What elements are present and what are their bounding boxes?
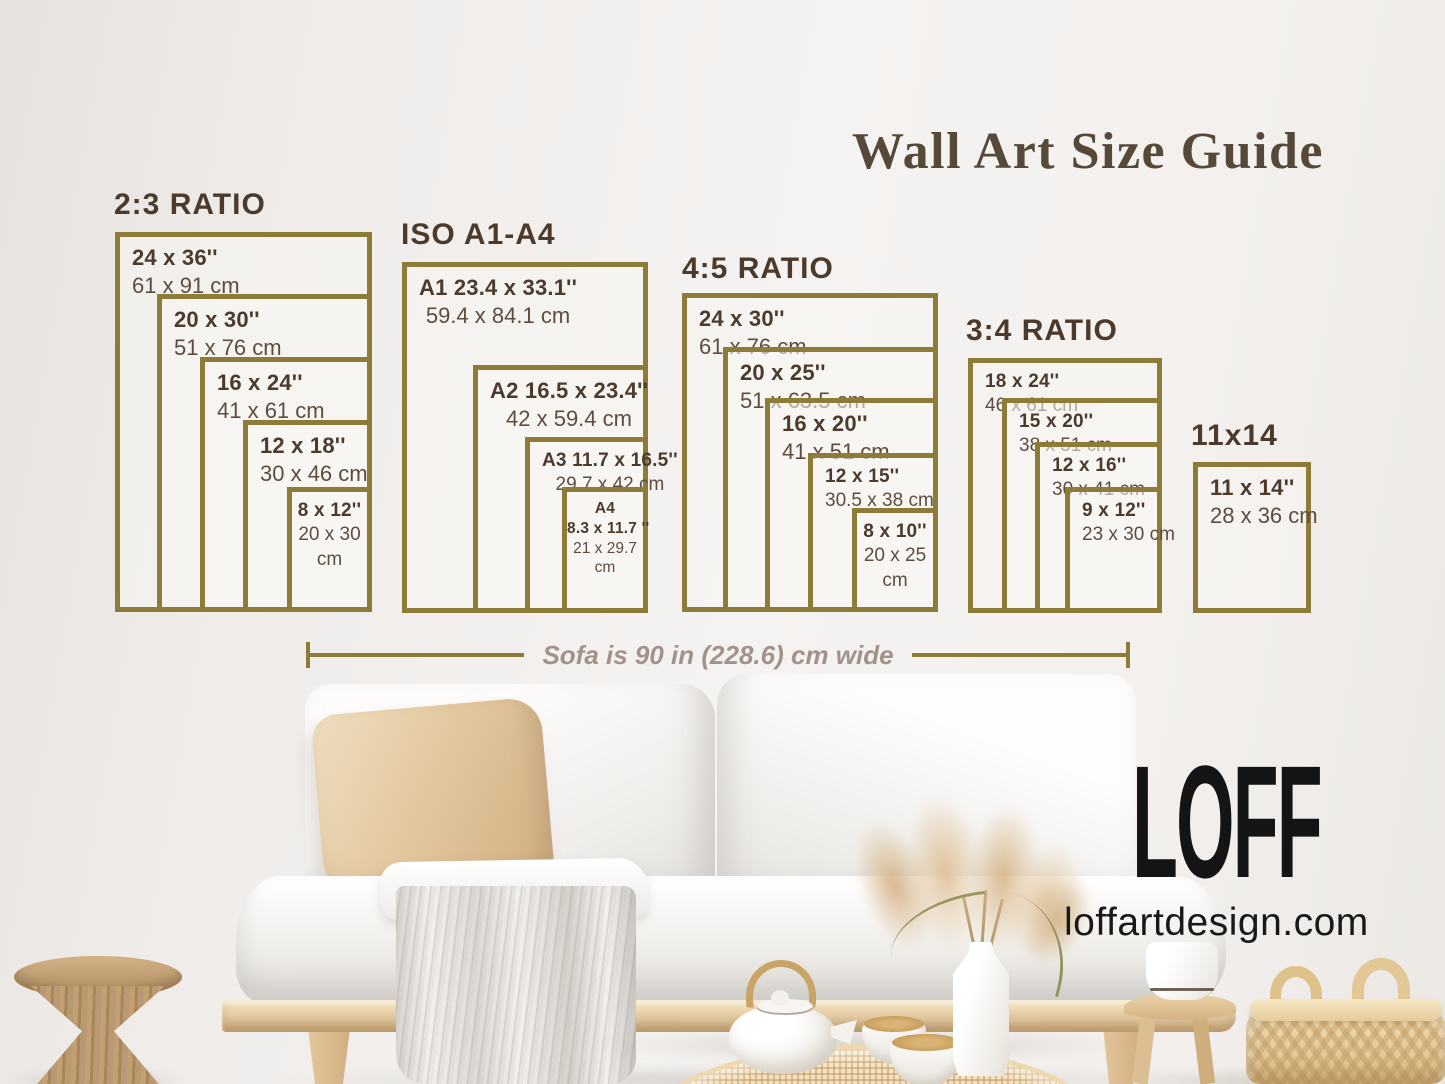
- size-frame-label: 24 x 36''61 x 91 cm: [132, 244, 240, 300]
- size-inches-text: 11 x 14'': [1210, 474, 1318, 502]
- size-inches-text: 24 x 30'': [699, 305, 807, 333]
- size-inches-text: 20 x 30'': [174, 306, 282, 334]
- section-header-2-3-ratio: 2:3 RATIO: [114, 188, 266, 222]
- section-header-3-4-ratio: 3:4 RATIO: [966, 314, 1118, 348]
- size-cm-text: 21 x 29.7: [567, 539, 643, 559]
- dimension-segment-right: [912, 653, 1126, 657]
- size-frame-label: 8 x 10''20 x 25cm: [857, 520, 933, 593]
- size-cm-text: 20 x 30: [292, 523, 367, 547]
- size-cm-text: 59.4 x 84.1 cm: [419, 302, 577, 330]
- size-cm-text: 30 x 46 cm: [260, 460, 368, 488]
- size-inches-text: 24 x 36'': [132, 244, 240, 272]
- size-inches-text: 16 x 24'': [217, 369, 325, 397]
- size-inches-text: A3 11.7 x 16.5'': [542, 449, 678, 473]
- size-cm-text: cm: [567, 558, 643, 578]
- wall-art-size-guide-poster: Wall Art Size Guide Sofa is 90 in (228.6…: [0, 0, 1445, 1084]
- size-cm-text: 23 x 30 cm: [1082, 523, 1175, 547]
- brand-logo: LOFF: [1132, 742, 1321, 902]
- sofa-width-dimension-line: Sofa is 90 in (228.6) cm wide: [306, 640, 1130, 670]
- size-frame-3-4-ratio-9x12: 9 x 12''23 x 30 cm: [1065, 487, 1162, 613]
- size-frame-label: 11 x 14''28 x 36 cm: [1210, 474, 1318, 530]
- size-frame-label: 12 x 15''30.5 x 38 cm: [825, 465, 934, 514]
- size-frame-label: A48.3 x 11.7 ''21 x 29.7cm: [567, 499, 643, 578]
- size-inches-text: 15 x 20'': [1019, 410, 1112, 434]
- size-frame-label: 8 x 12''20 x 30cm: [292, 499, 367, 572]
- size-inches-text: 20 x 25'': [740, 359, 866, 387]
- sofa-width-label: Sofa is 90 in (228.6) cm wide: [524, 640, 911, 671]
- section-header-iso-a1-a4: ISO A1-A4: [401, 218, 556, 252]
- size-cm-text: 20 x 25: [857, 544, 933, 568]
- size-cm-text: 28 x 36 cm: [1210, 502, 1318, 530]
- size-cm-text: cm: [292, 548, 367, 572]
- size-frame-label: 20 x 30''51 x 76 cm: [174, 306, 282, 362]
- size-inches-text: 12 x 15'': [825, 465, 934, 489]
- dimension-segment-left: [310, 653, 524, 657]
- size-frame-label: 16 x 24''41 x 61 cm: [217, 369, 325, 425]
- size-cm-text: cm: [857, 569, 933, 593]
- size-frame-iso-a1-a4-a4: A48.3 x 11.7 ''21 x 29.7cm: [562, 487, 648, 613]
- size-frame-label: 12 x 18''30 x 46 cm: [260, 432, 368, 488]
- size-frame-label: 9 x 12''23 x 30 cm: [1082, 499, 1175, 548]
- size-inches-text: A2 16.5 x 23.4'': [490, 377, 648, 405]
- section-header-4-5-ratio: 4:5 RATIO: [682, 252, 834, 286]
- size-inches-text: 8 x 12'': [292, 499, 367, 523]
- size-inches-text: 12 x 18'': [260, 432, 368, 460]
- page-title: Wall Art Size Guide: [852, 122, 1324, 181]
- size-inches-text: 12 x 16'': [1052, 454, 1145, 478]
- section-header-11x14: 11x14: [1191, 419, 1278, 453]
- size-frame-label: A1 23.4 x 33.1''59.4 x 84.1 cm: [419, 274, 577, 330]
- dimension-cap-right: [1126, 642, 1130, 668]
- size-frame-11x14-11x14: 11 x 14''28 x 36 cm: [1193, 462, 1311, 613]
- size-frame-label: A2 16.5 x 23.4''42 x 59.4 cm: [490, 377, 648, 433]
- size-inches-text: 16 x 20'': [782, 410, 890, 438]
- size-inches-text: 18 x 24'': [985, 370, 1078, 394]
- size-cm-text: 42 x 59.4 cm: [490, 405, 648, 433]
- size-inches-text: A1 23.4 x 33.1'': [419, 274, 577, 302]
- size-inches-text: A4: [567, 499, 643, 519]
- size-inches-text: 8 x 10'': [857, 520, 933, 544]
- size-inches-text: 8.3 x 11.7 '': [567, 519, 643, 539]
- size-frame-2-3-ratio-8x12: 8 x 12''20 x 30cm: [287, 487, 372, 612]
- size-frame-4-5-ratio-8x10: 8 x 10''20 x 25cm: [852, 508, 938, 612]
- size-inches-text: 9 x 12'': [1082, 499, 1175, 523]
- brand-website: loffartdesign.com: [1064, 901, 1369, 945]
